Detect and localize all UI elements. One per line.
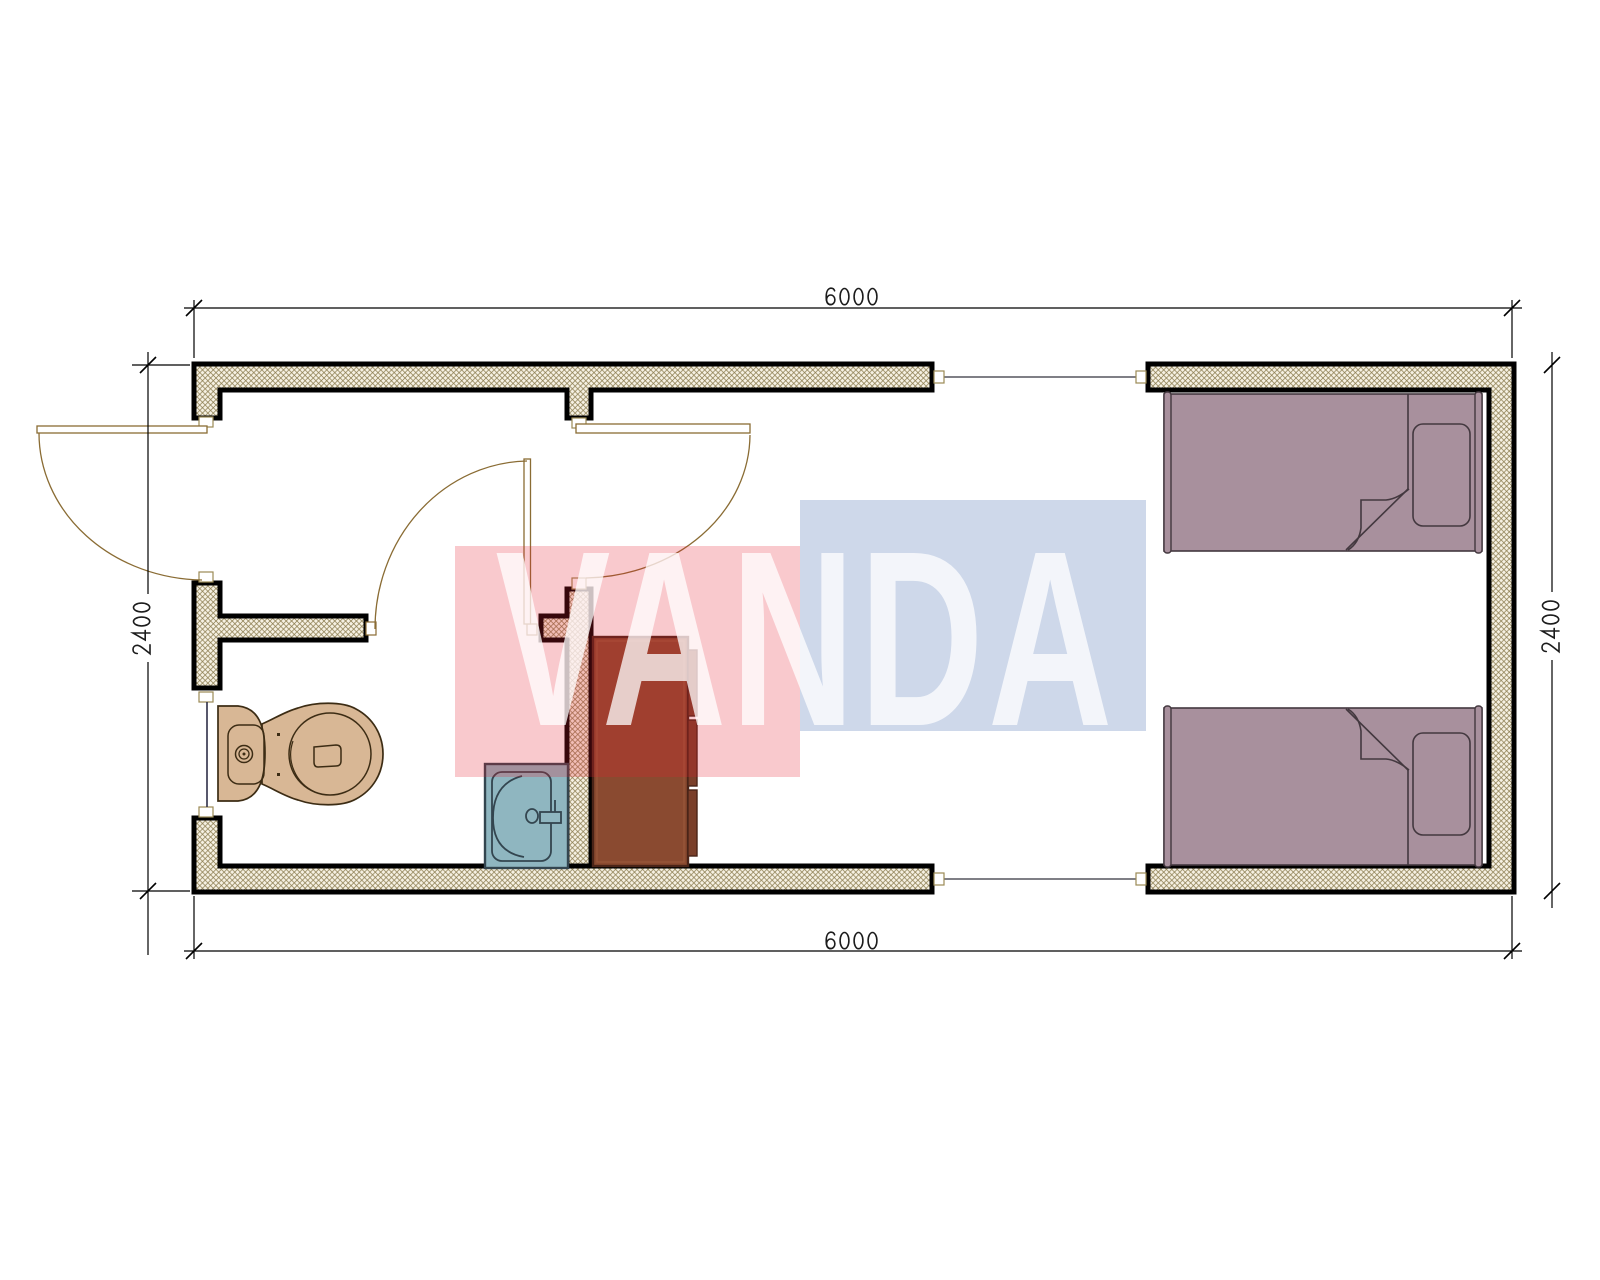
svg-text:VANDA: VANDA	[495, 499, 1116, 778]
